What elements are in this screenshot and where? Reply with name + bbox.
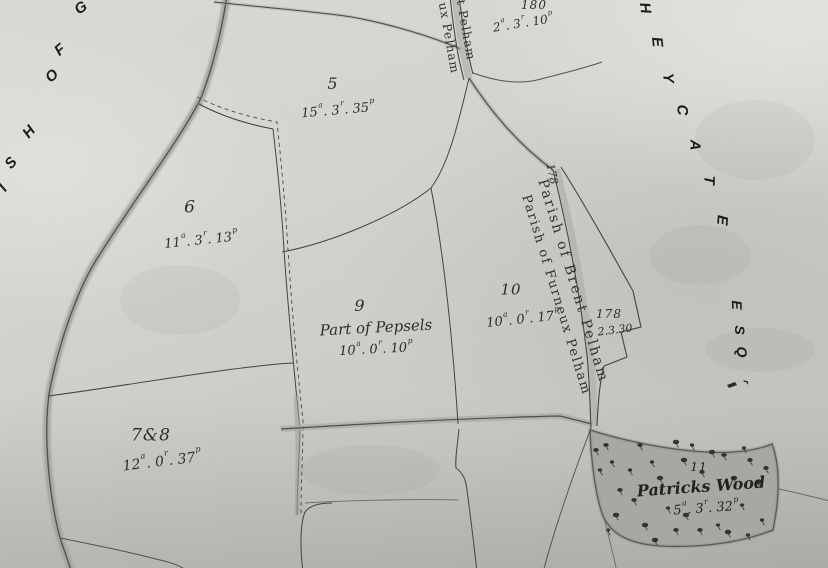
stamped-letter: S bbox=[733, 325, 747, 334]
stamped-letter: A bbox=[688, 140, 703, 151]
parcel78-east-shading bbox=[296, 395, 298, 515]
stamped-letter: E bbox=[730, 300, 744, 310]
scanned-parish-map: 5 15a. 3r. 35p 6 11a. 3r. 13p 7&8 12a. 0… bbox=[0, 0, 828, 568]
parcel180-number: 180 bbox=[521, 0, 547, 11]
stamped-letter: r bbox=[741, 380, 750, 384]
stamped-letter: E bbox=[649, 36, 665, 48]
parcel5-number: 5 bbox=[327, 76, 338, 92]
stamped-letter: T bbox=[701, 175, 716, 185]
stamped-letter: Y bbox=[660, 72, 676, 83]
parcel178-number: 178 bbox=[596, 308, 622, 320]
stamped-letter: E bbox=[714, 214, 730, 225]
parcel9-area: 10a. 0r. 10p bbox=[339, 340, 413, 358]
parcel6-number: 6 bbox=[184, 200, 196, 217]
wood-number: 11 bbox=[690, 461, 707, 473]
stamped-letter: Q bbox=[735, 346, 749, 357]
parcel10-number: 10 bbox=[500, 283, 521, 298]
parcel78-number: 7&8 bbox=[131, 428, 171, 445]
stamped-letter: C bbox=[674, 104, 689, 115]
parcel9-number: 9 bbox=[354, 298, 365, 314]
stamped-letter: H bbox=[637, 2, 653, 15]
